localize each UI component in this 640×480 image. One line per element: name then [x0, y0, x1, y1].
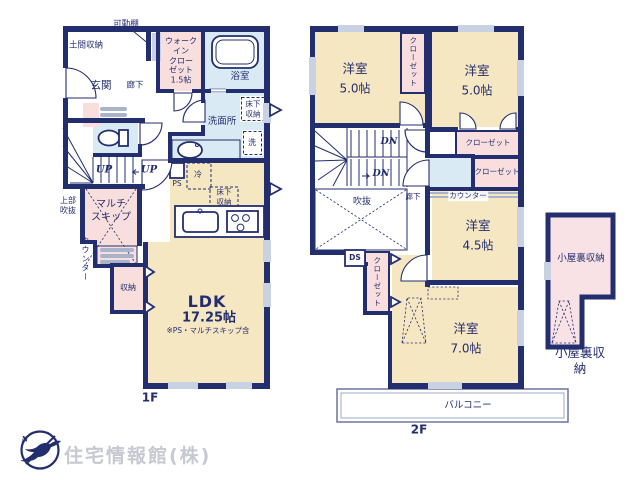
- attic-outline: [548, 215, 613, 347]
- multiskip-steps: [100, 248, 134, 264]
- label-ldk-note: ※PS・マルチスキップ含: [166, 326, 249, 336]
- label-underfloor-kitchen: 床下 収納: [217, 187, 232, 206]
- label-bathroom: 浴室: [230, 71, 249, 83]
- label-attic-caption: 小屋裏収納: [550, 345, 610, 377]
- dn-arrow: [362, 174, 369, 179]
- bay-marker-1: [270, 104, 281, 116]
- compass-n-label: N: [22, 436, 28, 445]
- attic-plan: [544, 215, 613, 347]
- label-closet-s: クローゼット: [373, 257, 381, 308]
- floorplan-page: 可動棚 土間収納 玄関 廊下 ウォーク イン クロー ゼット 1.5帖 浴室 床…: [0, 0, 640, 480]
- corridor-ne-door: [405, 130, 427, 152]
- stove: [227, 211, 258, 232]
- company-logo-text: 住宅情報館(株): [64, 441, 211, 468]
- label-washer: 洗: [248, 138, 256, 148]
- label-entrance: 玄関: [91, 79, 112, 92]
- attic-window: [544, 262, 551, 280]
- label-walk-in-closet: ウォーク イン クロー ゼット 1.5帖: [165, 37, 197, 86]
- label-bedroom-s-name: 洋室: [453, 321, 478, 337]
- label-hallway-1f: 廊下: [126, 81, 143, 92]
- label-storage-1f: 収納: [120, 283, 136, 293]
- room-bedroom-ne: [432, 31, 518, 127]
- label-doma-storage: 土間収納: [69, 41, 103, 52]
- label-bedroom-e-size: 4.5帖: [462, 238, 493, 253]
- label-ldk-size: 17.25帖: [182, 311, 236, 328]
- label-duct-space: DS: [349, 253, 361, 263]
- label-bedroom-nw-name: 洋室: [342, 61, 367, 77]
- label-bedroom-nw-size: 5.0帖: [339, 81, 370, 96]
- label-multi-skip: マルチ スキップ: [91, 199, 131, 225]
- room-ldk: [148, 160, 264, 383]
- label-floor1: 1F: [142, 390, 159, 405]
- label-counter-2f: カウンター: [448, 191, 488, 201]
- label-bedroom-ne-size: 5.0帖: [461, 83, 492, 98]
- toilet-tank-1f: [119, 130, 128, 146]
- label-counter-1f: カウンター: [81, 237, 89, 282]
- label-fridge: 冷: [194, 170, 202, 180]
- label-bedroom-s-size: 7.0帖: [450, 341, 481, 356]
- label-underfloor-bath: 床下 収納: [246, 99, 261, 118]
- label-floor2: 2F: [411, 422, 428, 437]
- label-closet-e: クローゼット: [475, 167, 520, 177]
- label-pipe-space: PS: [172, 179, 181, 189]
- label-attic-inside: 小屋裏収納: [557, 253, 605, 265]
- room-toilet-2f: [428, 158, 471, 187]
- label-washroom: 洗面所: [208, 116, 237, 128]
- label-dn-1: DN: [381, 136, 398, 148]
- label-closet-ne: クローゼット: [466, 138, 511, 148]
- label-ldk-name: LDK: [188, 292, 227, 312]
- label-hallway-2f: 廊下: [406, 192, 421, 202]
- kitchen-sink: [183, 212, 218, 232]
- label-bedroom-ne-name: 洋室: [464, 63, 489, 79]
- label-bedroom-e-name: 洋室: [465, 218, 490, 234]
- label-dn-2: DN: [373, 168, 390, 180]
- up-arrow: [133, 170, 139, 175]
- label-movable-shelf: 可動棚: [113, 20, 139, 31]
- toilet-bowl-1f: [99, 131, 120, 146]
- genkan-step-mat: [83, 103, 99, 127]
- label-void: 吹抜: [353, 197, 371, 209]
- bath-slide-door2: [211, 91, 228, 93]
- label-balcony: バルコニー: [444, 400, 491, 412]
- label-up-1: UP: [96, 165, 112, 178]
- floorplan-drawing: [0, 0, 640, 480]
- bath-slide-door: [209, 88, 226, 90]
- label-closet-nw: クローゼット: [409, 37, 417, 88]
- room-bedroom-e: [432, 191, 518, 280]
- bay-marker-2: [270, 183, 281, 195]
- label-up-2: UP: [141, 165, 157, 178]
- toilet-door-1f: [140, 123, 162, 145]
- label-upper-void: 上部 吹抜: [60, 196, 76, 216]
